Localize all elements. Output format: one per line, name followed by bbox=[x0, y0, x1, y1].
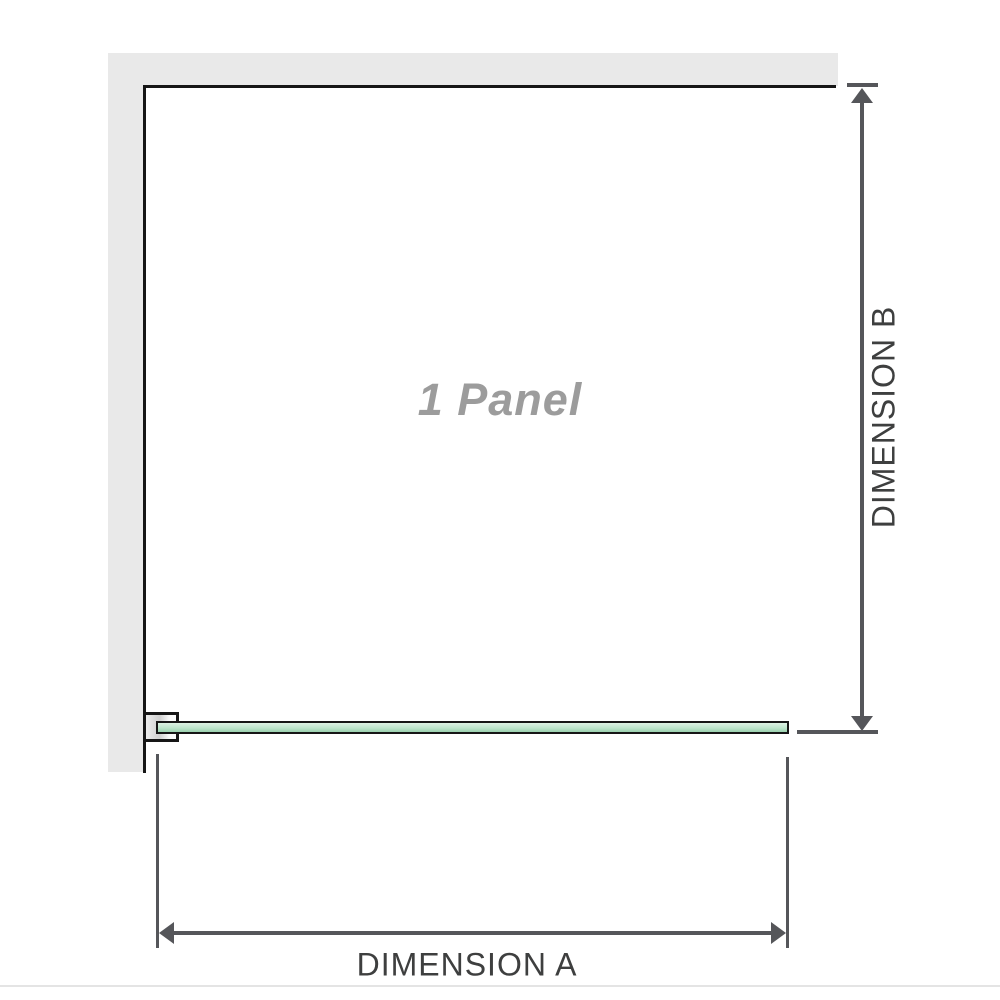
dimension-a-right-extension-line bbox=[786, 757, 789, 948]
dimension-a-left-extension-line bbox=[156, 754, 159, 948]
dimension-b-top-tick bbox=[847, 83, 878, 87]
glass-panel bbox=[156, 721, 789, 734]
dimension-b-bottom-tick bbox=[797, 730, 878, 734]
wall-left-strip bbox=[108, 53, 143, 772]
dimension-a-line bbox=[170, 931, 775, 935]
dimension-b-line bbox=[860, 98, 864, 724]
bottom-divider-line bbox=[0, 985, 1000, 987]
panel-count-label: 1 Panel bbox=[418, 374, 583, 426]
wall-top-strip bbox=[108, 53, 838, 86]
arrow-down-icon bbox=[851, 716, 873, 731]
panel-outline bbox=[143, 85, 836, 773]
dimension-b-label: DIMENSION B bbox=[866, 306, 903, 529]
arrow-right-icon bbox=[771, 922, 786, 944]
dimension-a-label: DIMENSION A bbox=[357, 947, 578, 984]
shower-panel-diagram: 1 Panel DIMENSION B DIMENSION A bbox=[0, 0, 1000, 1000]
